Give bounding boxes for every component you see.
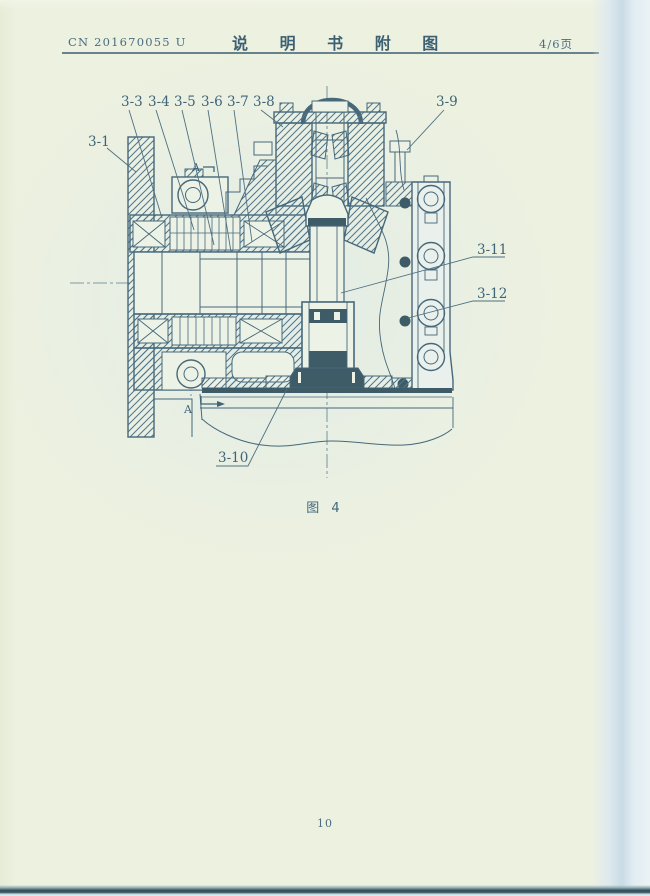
patent-drawing-page: CN 201670055 U 说 明 书 附 图 4/6页 [0,0,650,896]
label-3-12: 3-12 [477,286,507,302]
figure-caption: 图 4 [260,497,390,516]
scan-bottom-edge [0,885,650,896]
label-3-10: 3-10 [218,450,248,466]
label-3-7: 3-7 [227,94,249,110]
label-3-8: 3-8 [253,94,275,110]
label-3-5: 3-5 [174,94,196,110]
base-plate [200,378,453,446]
right-flange-column [398,176,454,390]
figure-4-technical-drawing: A A 3-1 3-3 3-4 3-5 3-6 3-7 3-8 3-9 [0,0,650,560]
section-label-bottom: A [183,403,193,416]
label-3-9: 3-9 [436,94,458,110]
label-3-6: 3-6 [201,94,223,110]
label-3-1: 3-1 [88,134,110,150]
label-3-11: 3-11 [477,242,507,258]
weld-dots [398,198,411,390]
label-3-3: 3-3 [121,94,143,110]
footer-page-number: 10 [280,817,370,830]
label-3-4: 3-4 [148,94,170,110]
bolt-3-9 [390,141,410,152]
